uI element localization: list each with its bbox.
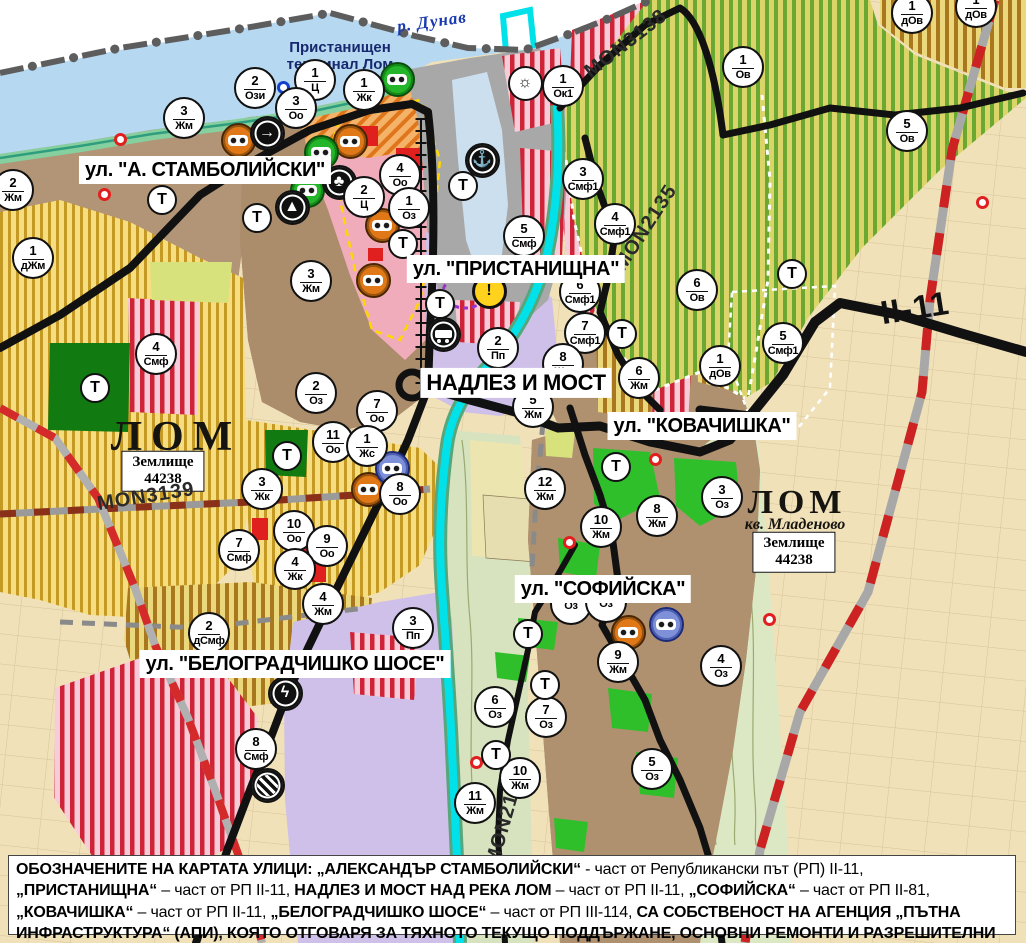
street-label: ул. "А. СТАМБОЛИЙСКИ" — [79, 156, 331, 184]
note-segment: – част от РП II-81, — [796, 882, 930, 899]
street-labels-layer: ул. "А. СТАМБОЛИЙСКИ"ул. "ПРИСТАНИЩНА"НА… — [0, 0, 1026, 943]
street-label: ул. "ПРИСТАНИЩНА" — [407, 255, 625, 283]
legend-note: ОБОЗНАЧЕНИТЕ НА КАРТАТА УЛИЦИ: „АЛЕКСАНД… — [8, 855, 1016, 935]
street-label: ул. "КОВАЧИШКА" — [608, 412, 797, 440]
note-segment: НАДЛЕЗ И МОСТ НАД РЕКА ЛОМ — [294, 882, 551, 899]
street-label: ул. "БЕЛОГРАДЧИШКО ШОСЕ" — [140, 650, 451, 678]
street-label: ул. "СОФИЙСКА" — [515, 575, 691, 603]
note-segment: „БЕЛОГРАДЧИШКО ШОСЕ“ — [271, 904, 487, 921]
note-segment: – част от РП II-11, — [133, 904, 270, 921]
note-segment: - част от Републикански път (РП) II-11, — [581, 861, 863, 878]
zoning-map[interactable]: р. ДунавПристанищен терминал ЛомЛОМЗемли… — [0, 0, 1026, 943]
note-segment: „КОВАЧИШКА“ — [16, 904, 133, 921]
note-segment: – част от РП III-114, — [486, 904, 636, 921]
note-segment: „СОФИЙСКА“ — [689, 882, 796, 899]
note-segment: – част от РП II-11, — [157, 882, 294, 899]
note-segment: „ПРИСТАНИЩНА“ — [16, 882, 157, 899]
note-segment: ОБОЗНАЧЕНИТЕ НА КАРТАТА УЛИЦИ: „АЛЕКСАНД… — [16, 861, 581, 878]
note-segment: – част от РП II-11, — [551, 882, 688, 899]
street-label: НАДЛЕЗ И МОСТ — [420, 368, 611, 398]
